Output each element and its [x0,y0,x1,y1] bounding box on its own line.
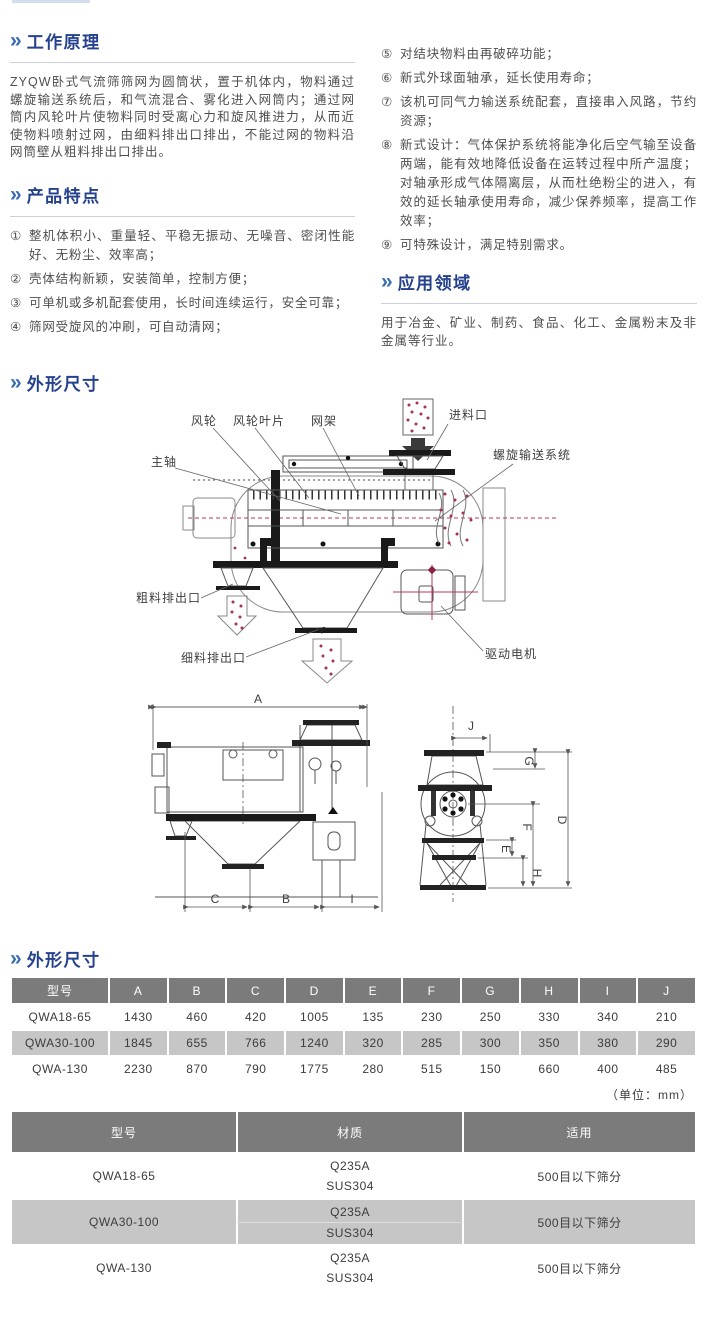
features-list-right: ⑤ 对结块物料由再破碎功能； ⑥ 新式外球面轴承，延长使用寿命； ⑦ 该机可同气… [381,45,697,255]
application-cell: 500目以下筛分 [464,1200,695,1244]
label-inlet: 进料口 [449,408,488,422]
item-text: 新式设计：气体保护系统将能净化后空气输至设备两端，能有效地降低设备在运转过程中所… [400,136,697,231]
section-features-heading: » 产品特点 [10,182,355,217]
value-cell: 380 [580,1031,637,1055]
material-cell: Q235A SUS304 [238,1154,462,1198]
left-column: » 工作原理 ZYQW卧式气流筛筛网为圆筒状，置于机体内，物料通过螺旋输送系统后… [10,8,355,350]
column-header: 型号 [12,1112,236,1152]
table-row: QWA18-65 1430 460 420 1005 135 230 250 3… [12,1005,695,1029]
item-text: 对结块物料由再破碎功能； [400,45,697,64]
dim-letter-F: F [520,823,534,830]
feed-hopper [383,450,455,490]
material-table: 型号 材质 适用 QWA18-65 Q235A SUS304 500目以下筛分 [10,1110,697,1292]
item-text: 筛网受旋风的冲刷，可自动清网； [29,318,355,337]
material-option: SUS304 [239,1176,461,1196]
column-header: E [345,978,402,1003]
item-text: 整机体积小、重量轻、平稳无振动、无噪音、密闭性能好、无粉尘、效率高； [29,227,355,265]
column-header: D [286,978,343,1003]
material-option: SUS304 [239,1268,461,1288]
section-dimensions-heading: » 外形尺寸 [10,370,101,395]
list-item: ⑥ 新式外球面轴承，延长使用寿命； [381,69,697,88]
item-number: ⑤ [381,45,393,64]
item-number: ① [10,227,22,265]
value-cell: 135 [345,1005,402,1029]
intro-columns: » 工作原理 ZYQW卧式气流筛筛网为圆筒状，置于机体内，物料通过螺旋输送系统后… [10,8,697,350]
list-item: ⑧ 新式设计：气体保护系统将能净化后空气输至设备两端，能有效地降低设备在运转过程… [381,136,697,231]
label-fine-outlet: 细料排出口 [181,651,246,665]
model-cell: QWA18-65 [12,1005,108,1029]
column-header: 适用 [464,1112,695,1152]
right-column: ⑤ 对结块物料由再破碎功能； ⑥ 新式外球面轴承，延长使用寿命； ⑦ 该机可同气… [381,8,697,350]
dim-letter-B: B [282,892,290,906]
value-cell: 330 [521,1005,578,1029]
list-item: ① 整机体积小、重量轻、平稳无振动、无噪音、密闭性能好、无粉尘、效率高； [10,227,355,265]
application-cell: 500目以下筛分 [464,1246,695,1290]
column-header: A [110,978,167,1003]
dimensions-table: 型号 A B C D E F G H I J QWA18-65 1430 4 [10,976,697,1083]
list-item: ⑤ 对结块物料由再破碎功能； [381,45,697,64]
top-edge-artifact [12,0,90,3]
value-cell: 285 [403,1031,460,1055]
chevron-icon: » [381,271,391,292]
table-header-row: 型号 材质 适用 [12,1112,695,1152]
dim-letter-H: H [530,869,544,878]
column-header: 材质 [238,1112,462,1152]
value-cell: 1775 [286,1057,343,1081]
dim-letter-I: I [350,892,353,906]
model-cell: QWA30-100 [12,1031,108,1055]
list-item: ③ 可单机或多机配套使用，长时间连续运行，安全可靠； [10,294,355,313]
table-row: QWA30-100 Q235A SUS304 500目以下筛分 [12,1200,695,1244]
fine-outlet-part [263,568,383,683]
section-dimensions-table-heading: » 外形尺寸 [10,946,101,971]
coarse-outlet-part [216,568,260,635]
label-coarse-outlet: 粗料排出口 [136,591,201,605]
value-cell: 460 [169,1005,226,1029]
dim-letter-E: E [499,845,513,853]
material-option: Q235A [237,1202,463,1222]
list-item: ④ 筛网受旋风的冲刷，可自动清网； [10,318,355,337]
value-cell: 1005 [286,1005,343,1029]
table-header-row: 型号 A B C D E F G H I J [12,978,695,1003]
value-cell: 660 [521,1057,578,1081]
left-plate [271,470,280,561]
item-number: ⑨ [381,236,393,255]
value-cell: 320 [345,1031,402,1055]
value-cell: 870 [169,1057,226,1081]
label-wind-blade: 风轮叶片 [233,414,285,428]
value-cell: 2230 [110,1057,167,1081]
dim-J [456,734,490,752]
value-cell: 340 [580,1005,637,1029]
chevron-icon: » [10,948,20,969]
label-wind-wheel: 风轮 [191,414,217,428]
item-number: ⑧ [381,136,393,231]
label-mesh-frame: 网架 [311,414,337,428]
model-cell: QWA30-100 [12,1200,236,1244]
item-text: 壳体结构新颖，安装简单，控制方便； [29,270,355,289]
label-main-shaft: 主轴 [151,454,177,469]
dim-letter-D: D [555,816,569,825]
side-view [152,725,378,897]
item-text: 可单机或多机配套使用，长时间连续运行，安全可靠； [29,294,355,313]
item-text: 可特殊设计，满足特别需求。 [400,236,697,255]
dimensions-table-wrap: 型号 A B C D E F G H I J QWA18-65 1430 4 [10,976,697,1083]
application-cell: 500目以下筛分 [464,1154,695,1198]
value-cell: 1430 [110,1005,167,1029]
value-cell: 280 [345,1057,402,1081]
application-text: 用于冶金、矿业、制药、食品、化工、金属粉末及非金属等行业。 [381,315,697,350]
list-item: ② 壳体结构新颖，安装简单，控制方便； [10,270,355,289]
chevron-icon: » [10,184,20,205]
value-cell: 290 [638,1031,695,1055]
chevron-icon: » [10,372,20,393]
value-cell: 350 [521,1031,578,1055]
item-number: ⑦ [381,93,393,131]
material-option: Q235A [239,1156,461,1176]
features-list-left: ① 整机体积小、重量轻、平稳无振动、无噪音、密闭性能好、无粉尘、效率高； ② 壳… [10,227,355,337]
section-title: 产品特点 [27,182,101,207]
dim-letter-C: C [211,892,220,906]
value-cell: 790 [227,1057,284,1081]
dim-letter-J: J [468,719,474,733]
section-title: 外形尺寸 [27,370,101,395]
item-text: 该机可同气力输送系统配套，直接串入风路，节约资源； [400,93,697,131]
section-application-heading: » 应用领域 [381,269,697,304]
column-header: H [521,978,578,1003]
column-header: J [638,978,695,1003]
table-row: QWA-130 2230 870 790 1775 280 515 150 66… [12,1057,695,1081]
section-title: 工作原理 [27,28,101,53]
value-cell: 250 [462,1005,519,1029]
item-number: ⑥ [381,69,393,88]
table-row: QWA-130 Q235A SUS304 500目以下筛分 [12,1246,695,1290]
column-header: I [580,978,637,1003]
dimension-drawings: A C B I [100,692,590,937]
value-cell: 230 [403,1005,460,1029]
machine-cutaway-diagram: 主轴 风轮 风轮叶片 网架 进料口 螺旋输送系统 粗料排出口 细料排出口 驱动电… [133,398,580,690]
value-cell: 1240 [286,1031,343,1055]
item-number: ③ [10,294,22,313]
material-cell: Q235A SUS304 [238,1246,462,1290]
value-cell: 485 [638,1057,695,1081]
material-table-wrap: 型号 材质 适用 QWA18-65 Q235A SUS304 500目以下筛分 [10,1110,697,1292]
value-cell: 1845 [110,1031,167,1055]
model-cell: QWA18-65 [12,1154,236,1198]
item-number: ② [10,270,22,289]
leader-lines [175,424,513,657]
section-title: 应用领域 [398,269,472,294]
chevron-icon: » [10,30,20,51]
label-screw-system: 螺旋输送系统 [493,447,571,462]
value-cell: 420 [227,1005,284,1029]
dim-letter-G: G [522,756,536,765]
value-cell: 400 [580,1057,637,1081]
value-cell: 515 [403,1057,460,1081]
value-cell: 210 [638,1005,695,1029]
item-text: 新式外球面轴承，延长使用寿命； [400,69,697,88]
item-number: ④ [10,318,22,337]
base-plate [213,561,398,568]
catalog-page: » 工作原理 ZYQW卧式气流筛筛网为圆筒状，置于机体内，物料通过螺旋输送系统后… [0,0,707,1335]
material-option: Q235A [239,1248,461,1268]
value-cell: 766 [227,1031,284,1055]
material-cell: Q235A SUS304 [238,1200,462,1244]
list-item: ⑦ 该机可同气力输送系统配套，直接串入风路，节约资源； [381,93,697,131]
value-cell: 300 [462,1031,519,1055]
table-row: QWA18-65 Q235A SUS304 500目以下筛分 [12,1154,695,1198]
model-cell: QWA-130 [12,1057,108,1081]
list-item: ⑨ 可特殊设计，满足特别需求。 [381,236,697,255]
section-working-principle-heading: » 工作原理 [10,28,355,63]
column-header: C [227,978,284,1003]
section-title: 外形尺寸 [27,946,101,971]
unit-note: （单位：mm） [606,1086,693,1103]
model-cell: QWA-130 [12,1246,236,1290]
dim-letter-A: A [254,692,262,706]
column-header: B [169,978,226,1003]
column-header: 型号 [12,978,108,1003]
material-option: SUS304 [237,1222,463,1243]
label-drive-motor: 驱动电机 [485,647,537,661]
working-principle-text: ZYQW卧式气流筛筛网为圆筒状，置于机体内，物料通过螺旋输送系统后，和气流混合、… [10,74,355,162]
column-header: F [403,978,460,1003]
table-row: QWA30-100 1845 655 766 1240 320 285 300 … [12,1031,695,1055]
value-cell: 150 [462,1057,519,1081]
column-header: G [462,978,519,1003]
value-cell: 655 [169,1031,226,1055]
